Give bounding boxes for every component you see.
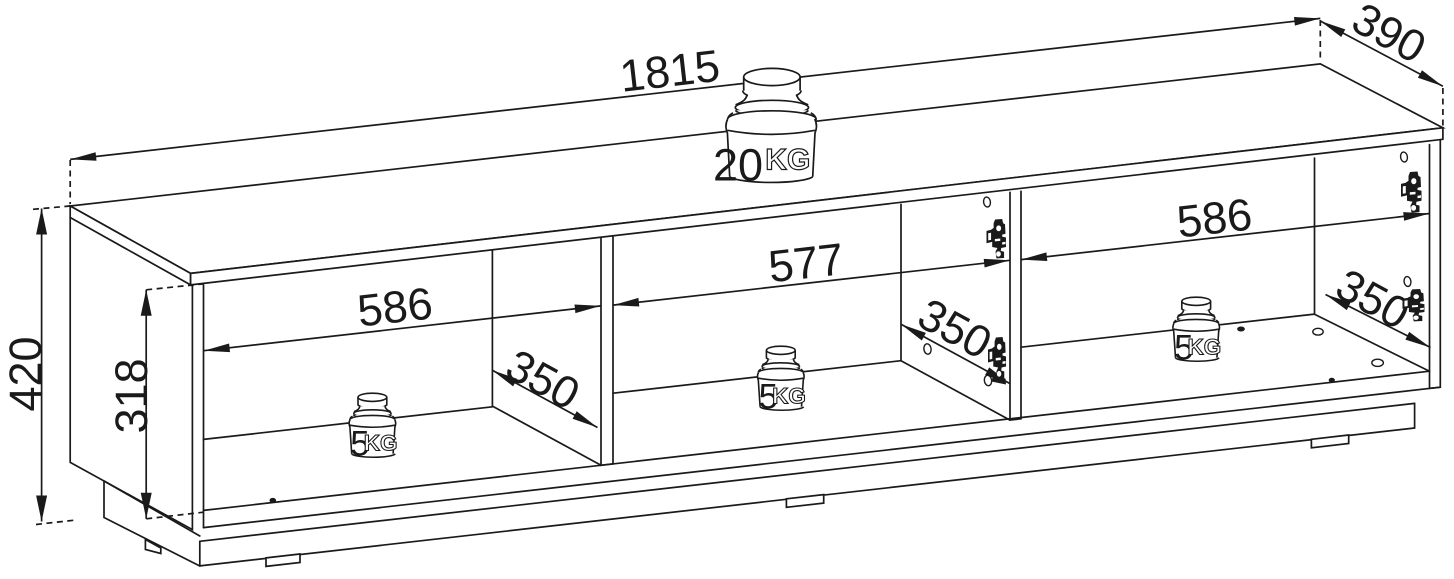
svg-text:318: 318 — [106, 358, 157, 433]
svg-text:KG: KG — [765, 144, 810, 177]
svg-text:KG: KG — [1188, 335, 1222, 360]
svg-text:577: 577 — [766, 233, 846, 292]
svg-text:420: 420 — [0, 336, 51, 411]
svg-text:586: 586 — [355, 277, 435, 336]
svg-text:KG: KG — [364, 431, 398, 456]
svg-text:KG: KG — [772, 384, 806, 409]
svg-text:20: 20 — [713, 140, 763, 191]
svg-text:586: 586 — [1174, 188, 1254, 247]
